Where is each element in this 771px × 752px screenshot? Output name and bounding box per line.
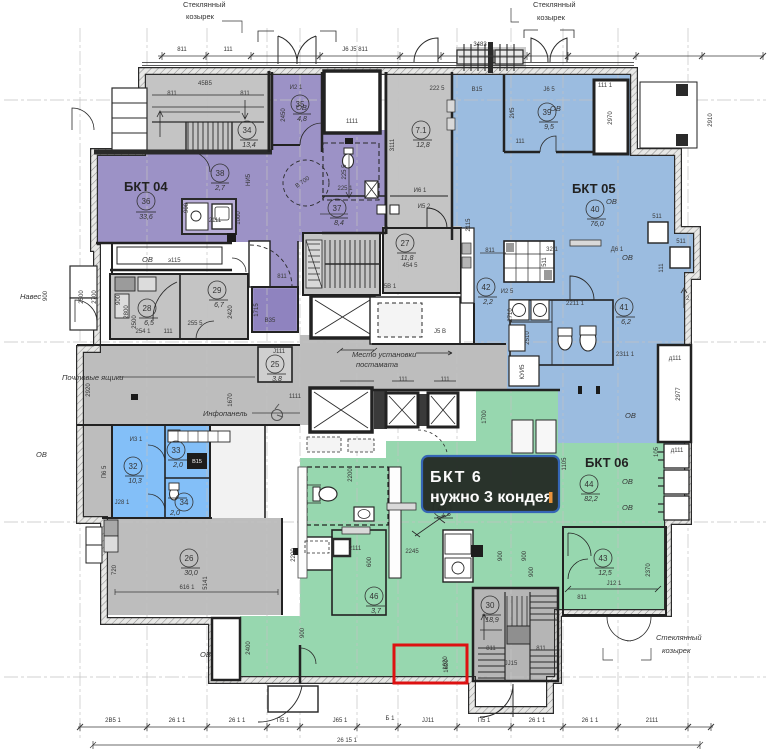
svg-text:2370: 2370 (646, 563, 652, 577)
svg-text:В35: В35 (265, 318, 276, 324)
svg-text:2111: 2111 (209, 218, 222, 224)
svg-text:30,0: 30,0 (184, 570, 198, 577)
svg-text:37: 37 (333, 204, 342, 213)
svg-text:ОВ: ОВ (622, 253, 633, 262)
svg-text:JJ11: JJ11 (422, 718, 435, 724)
svg-text:6,5: 6,5 (144, 320, 154, 327)
svg-text:постамата: постамата (356, 360, 398, 369)
svg-text:12,8: 12,8 (416, 142, 430, 149)
svg-text:38: 38 (216, 169, 225, 178)
svg-text:34: 34 (243, 126, 252, 135)
svg-text:J111: J111 (273, 349, 286, 355)
svg-text:1105: 1105 (562, 457, 568, 471)
svg-text:БКТ 06: БКТ 06 (585, 455, 629, 470)
svg-text:д111: д111 (671, 448, 684, 454)
svg-text:26: 26 (185, 554, 194, 563)
svg-text:511: 511 (652, 214, 662, 220)
svg-text:111: 111 (659, 263, 665, 273)
svg-text:39: 39 (543, 108, 552, 117)
svg-text:12,5: 12,5 (598, 570, 612, 577)
svg-text:ОВ: ОВ (142, 255, 153, 264)
svg-text:44: 44 (585, 480, 594, 489)
svg-text:6,7: 6,7 (214, 302, 225, 309)
svg-text:811: 811 (577, 595, 587, 601)
svg-text:3,7: 3,7 (371, 608, 382, 615)
svg-text:П6 5: П6 5 (102, 465, 108, 478)
svg-text:10,3: 10,3 (128, 478, 142, 485)
svg-text:козырек: козырек (662, 646, 691, 655)
svg-text:454 5: 454 5 (402, 263, 418, 269)
svg-text:2977: 2977 (676, 387, 682, 401)
svg-text:3483: 3483 (473, 42, 487, 48)
svg-text:J6 5: J6 5 (543, 87, 555, 93)
svg-text:д111: д111 (669, 356, 682, 362)
svg-text:козырек: козырек (186, 12, 215, 21)
svg-text:225 5: 225 5 (342, 164, 348, 180)
svg-text:И3 1: И3 1 (130, 437, 143, 443)
svg-text:Инфопанель: Инфопанель (203, 409, 248, 418)
svg-text:Д6 1: Д6 1 (611, 247, 624, 253)
svg-text:2920: 2920 (86, 383, 92, 397)
svg-text:13,4: 13,4 (242, 142, 256, 149)
svg-text:2710: 2710 (508, 308, 514, 322)
svg-text:2115: 2115 (466, 218, 472, 232)
svg-text:2400: 2400 (246, 641, 252, 655)
svg-text:2800: 2800 (124, 305, 130, 319)
svg-text:ОВ: ОВ (36, 450, 47, 459)
svg-text:18,9: 18,9 (485, 617, 499, 624)
svg-text:900: 900 (116, 294, 122, 305)
svg-text:32: 32 (129, 462, 138, 471)
svg-text:J65 1: J65 1 (333, 718, 348, 724)
svg-text:30: 30 (486, 601, 495, 610)
svg-text:2970: 2970 (608, 111, 614, 125)
svg-text:32 1: 32 1 (546, 247, 558, 253)
svg-text:811: 811 (485, 248, 495, 254)
svg-text:В15: В15 (192, 459, 202, 465)
svg-text:НИ5: НИ5 (246, 173, 252, 186)
svg-text:41: 41 (620, 303, 629, 312)
svg-text:ОВ: ОВ (622, 503, 633, 512)
svg-text:2420: 2420 (228, 305, 234, 319)
svg-text:26 1 1: 26 1 1 (582, 718, 599, 724)
svg-text:2,2: 2,2 (482, 299, 493, 306)
svg-text:КУИ5: КУИ5 (520, 364, 526, 380)
svg-text:Почтовые ящики: Почтовые ящики (62, 373, 124, 382)
svg-text:э115: э115 (168, 258, 181, 264)
svg-text:2В5 1: 2В5 1 (105, 718, 121, 724)
svg-text:9,5: 9,5 (544, 124, 554, 131)
svg-text:7.1: 7.1 (415, 126, 427, 135)
svg-text:И2 1: И2 1 (290, 85, 303, 91)
svg-text:2З11 1: 2З11 1 (616, 352, 635, 358)
svg-text:254 1: 254 1 (135, 329, 151, 335)
svg-text:2200: 2200 (291, 548, 297, 562)
svg-text:2И5: 2И5 (510, 107, 516, 119)
svg-text:Б 1: Б 1 (386, 716, 396, 722)
svg-text:2200: 2200 (348, 468, 354, 482)
svg-text:1700: 1700 (482, 410, 488, 424)
svg-text:811: 811 (177, 47, 187, 53)
svg-text:1620: 1620 (444, 659, 450, 673)
svg-text:нужно 3 кондея: нужно 3 кондея (430, 489, 553, 506)
svg-text:JJ15: JJ15 (505, 661, 518, 667)
svg-text:33,6: 33,6 (139, 214, 153, 221)
svg-text:Навес: Навес (20, 292, 41, 301)
svg-text:В15: В15 (472, 87, 483, 93)
svg-text:5В 1: 5В 1 (384, 284, 397, 290)
svg-text:И2 5: И2 5 (501, 289, 514, 295)
svg-text:28: 28 (143, 304, 152, 313)
svg-text:900: 900 (184, 202, 190, 213)
svg-text:811: 811 (240, 91, 250, 97)
svg-text:511: 511 (542, 257, 548, 267)
svg-text:111: 111 (163, 329, 173, 335)
svg-text:26 1 1: 26 1 1 (529, 718, 546, 724)
svg-text:ОВ: ОВ (625, 411, 636, 420)
svg-text:ОВ: ОВ (200, 650, 211, 659)
svg-text:2211 1: 2211 1 (566, 301, 585, 307)
svg-text:2,0: 2,0 (169, 510, 180, 517)
svg-text:козырек: козырек (537, 13, 566, 22)
svg-text:8,4: 8,4 (334, 220, 344, 227)
svg-text:И6 1: И6 1 (414, 188, 427, 194)
svg-text:616 1: 616 1 (179, 585, 195, 591)
svg-text:И5 2: И5 2 (418, 204, 431, 210)
svg-text:2,7: 2,7 (214, 185, 226, 192)
svg-text:720: 720 (112, 564, 118, 575)
svg-text:43: 43 (599, 554, 608, 563)
svg-text:6,2: 6,2 (621, 319, 631, 326)
svg-text:2111: 2111 (349, 546, 362, 552)
svg-text:811: 811 (167, 91, 177, 97)
svg-text:П5 1: П5 1 (277, 718, 290, 724)
svg-text:26 1 1: 26 1 1 (229, 718, 246, 724)
svg-text:5141: 5141 (203, 576, 209, 590)
svg-text:БКТ 6: БКТ 6 (430, 469, 482, 486)
svg-text:76,0: 76,0 (590, 221, 604, 228)
svg-text:111: 111 (398, 377, 408, 383)
svg-text:П5 1: П5 1 (478, 718, 491, 724)
svg-text:11,8: 11,8 (400, 255, 413, 262)
svg-text:811: 811 (486, 646, 496, 652)
svg-text:222 5: 222 5 (429, 86, 445, 92)
svg-text:35: 35 (296, 100, 305, 109)
svg-text:600: 600 (367, 556, 373, 567)
svg-text:900: 900 (529, 566, 535, 577)
svg-text:Стеклянный: Стеклянный (656, 633, 702, 642)
svg-text:J5 В: J5 В (434, 329, 446, 335)
svg-text:2510: 2510 (525, 331, 531, 345)
svg-text:J12 1: J12 1 (607, 581, 622, 587)
svg-text:811: 811 (277, 274, 287, 280)
svg-text:1000: 1000 (236, 211, 242, 225)
svg-text:111: 111 (515, 139, 525, 145)
svg-text:111: 111 (223, 47, 233, 53)
svg-text:4,8: 4,8 (297, 116, 307, 123)
svg-text:511: 511 (676, 239, 686, 245)
svg-text:2910: 2910 (708, 113, 714, 127)
svg-text:2111: 2111 (646, 718, 659, 724)
svg-text:26 1 1: 26 1 1 (169, 718, 186, 724)
svg-text:2700: 2700 (92, 290, 98, 304)
svg-text:255 5: 255 5 (187, 321, 203, 327)
svg-text:Стеклянный: Стеклянный (533, 0, 576, 9)
svg-text:29: 29 (213, 286, 222, 295)
svg-text:2500: 2500 (79, 290, 85, 304)
svg-text:900: 900 (498, 550, 504, 561)
svg-text:1670: 1670 (228, 393, 234, 407)
svg-text:900: 900 (300, 627, 306, 638)
svg-text:1111: 1111 (289, 394, 302, 400)
svg-text:900: 900 (522, 550, 528, 561)
svg-text:225 1: 225 1 (337, 186, 353, 192)
svg-text:105: 105 (654, 446, 660, 457)
svg-text:2245: 2245 (405, 549, 419, 555)
svg-text:1111: 1111 (346, 119, 359, 125)
svg-text:3111: 3111 (390, 138, 396, 151)
svg-text:25: 25 (271, 360, 280, 369)
svg-text:811: 811 (536, 646, 546, 652)
svg-text:27: 27 (401, 239, 410, 248)
svg-text:Место установки: Место установки (352, 350, 417, 359)
svg-text:26 15 1: 26 15 1 (337, 738, 358, 744)
svg-text:1715: 1715 (254, 303, 260, 317)
svg-text:2,0: 2,0 (172, 462, 183, 469)
svg-text:36: 36 (142, 197, 151, 206)
svg-text:БКТ 05: БКТ 05 (572, 181, 616, 196)
svg-text:82,2: 82,2 (584, 496, 598, 503)
svg-text:2450: 2450 (281, 108, 287, 122)
svg-text:ОВ: ОВ (606, 197, 617, 206)
svg-text:40: 40 (591, 205, 600, 214)
svg-text:33: 33 (172, 446, 181, 455)
svg-text:ОВ: ОВ (622, 477, 633, 486)
svg-text:42: 42 (482, 283, 491, 292)
svg-text:34: 34 (180, 498, 189, 507)
svg-text:45В5: 45В5 (198, 81, 213, 87)
svg-text:2500: 2500 (132, 315, 138, 329)
svg-text:111: 111 (440, 377, 450, 383)
svg-text:111 1: 111 1 (598, 83, 613, 89)
svg-text:46: 46 (370, 592, 379, 601)
svg-text:J28 1: J28 1 (115, 500, 130, 506)
svg-text:J6 J5 811: J6 J5 811 (342, 47, 368, 53)
svg-text:900: 900 (43, 290, 49, 301)
svg-text:3,8: 3,8 (272, 376, 282, 383)
svg-text:Стеклянный: Стеклянный (183, 0, 226, 9)
